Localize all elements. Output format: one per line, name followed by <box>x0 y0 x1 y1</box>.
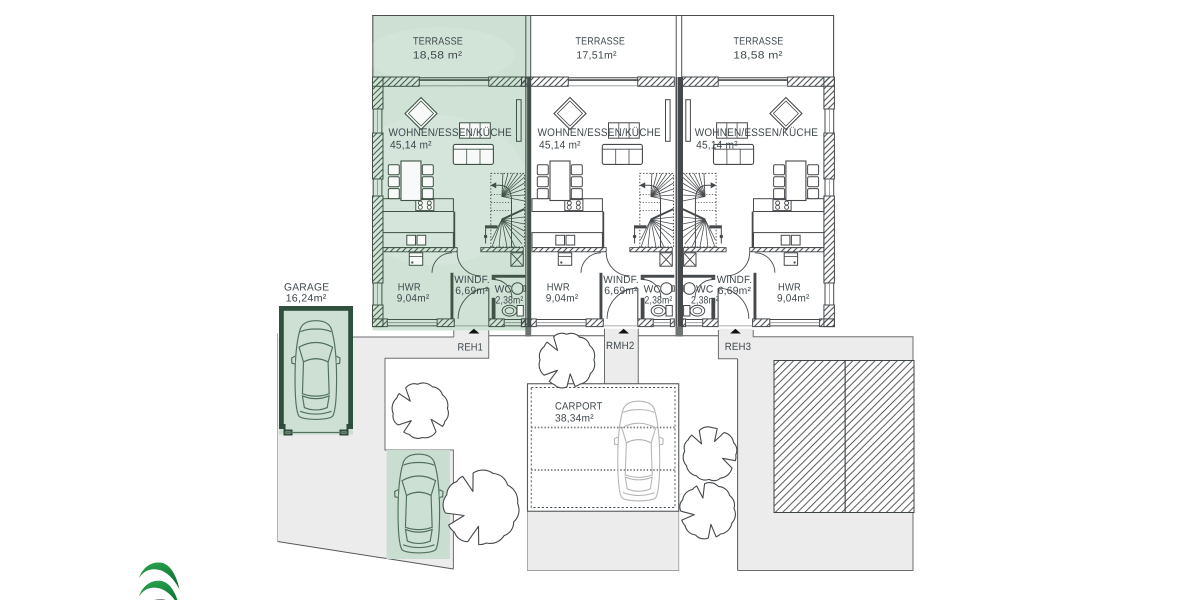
svg-text:38,34m²: 38,34m² <box>555 413 594 425</box>
svg-text:16,24m²: 16,24m² <box>286 293 327 305</box>
svg-text:REH1: REH1 <box>458 342 484 354</box>
svg-text:6,69m²: 6,69m² <box>455 285 489 297</box>
svg-text:TERRASSE: TERRASSE <box>734 36 784 48</box>
svg-text:9,04m²: 9,04m² <box>546 293 579 305</box>
svg-text:WOHNEN/ESSEN/KÜCHE: WOHNEN/ESSEN/KÜCHE <box>389 126 512 139</box>
svg-text:2,38m²: 2,38m² <box>691 294 719 306</box>
svg-text:WOHNEN/ESSEN/KÜCHE: WOHNEN/ESSEN/KÜCHE <box>538 126 661 139</box>
svg-text:WOHNEN/ESSEN/KÜCHE: WOHNEN/ESSEN/KÜCHE <box>695 126 818 139</box>
svg-text:9,04m²: 9,04m² <box>777 293 810 305</box>
svg-text:CARPORT: CARPORT <box>555 401 603 413</box>
svg-text:2,38m²: 2,38m² <box>496 294 524 306</box>
svg-text:45,14 m²: 45,14 m² <box>696 139 738 151</box>
svg-text:TERRASSE: TERRASSE <box>576 36 626 48</box>
svg-text:45,14 m²: 45,14 m² <box>390 139 432 151</box>
svg-text:9,04m²: 9,04m² <box>397 293 430 305</box>
svg-text:45,14 m²: 45,14 m² <box>539 139 581 151</box>
svg-text:17,51m²: 17,51m² <box>576 50 617 62</box>
svg-text:RMH2: RMH2 <box>606 340 635 352</box>
svg-text:REH3: REH3 <box>725 341 751 353</box>
svg-text:18,58 m²: 18,58 m² <box>733 50 783 62</box>
svg-text:2,38m²: 2,38m² <box>645 294 673 306</box>
svg-text:18,58 m²: 18,58 m² <box>413 50 463 62</box>
svg-text:TERRASSE: TERRASSE <box>413 36 463 48</box>
svg-text:6,69m²: 6,69m² <box>604 285 638 297</box>
svg-text:6,69m²: 6,69m² <box>718 285 752 297</box>
